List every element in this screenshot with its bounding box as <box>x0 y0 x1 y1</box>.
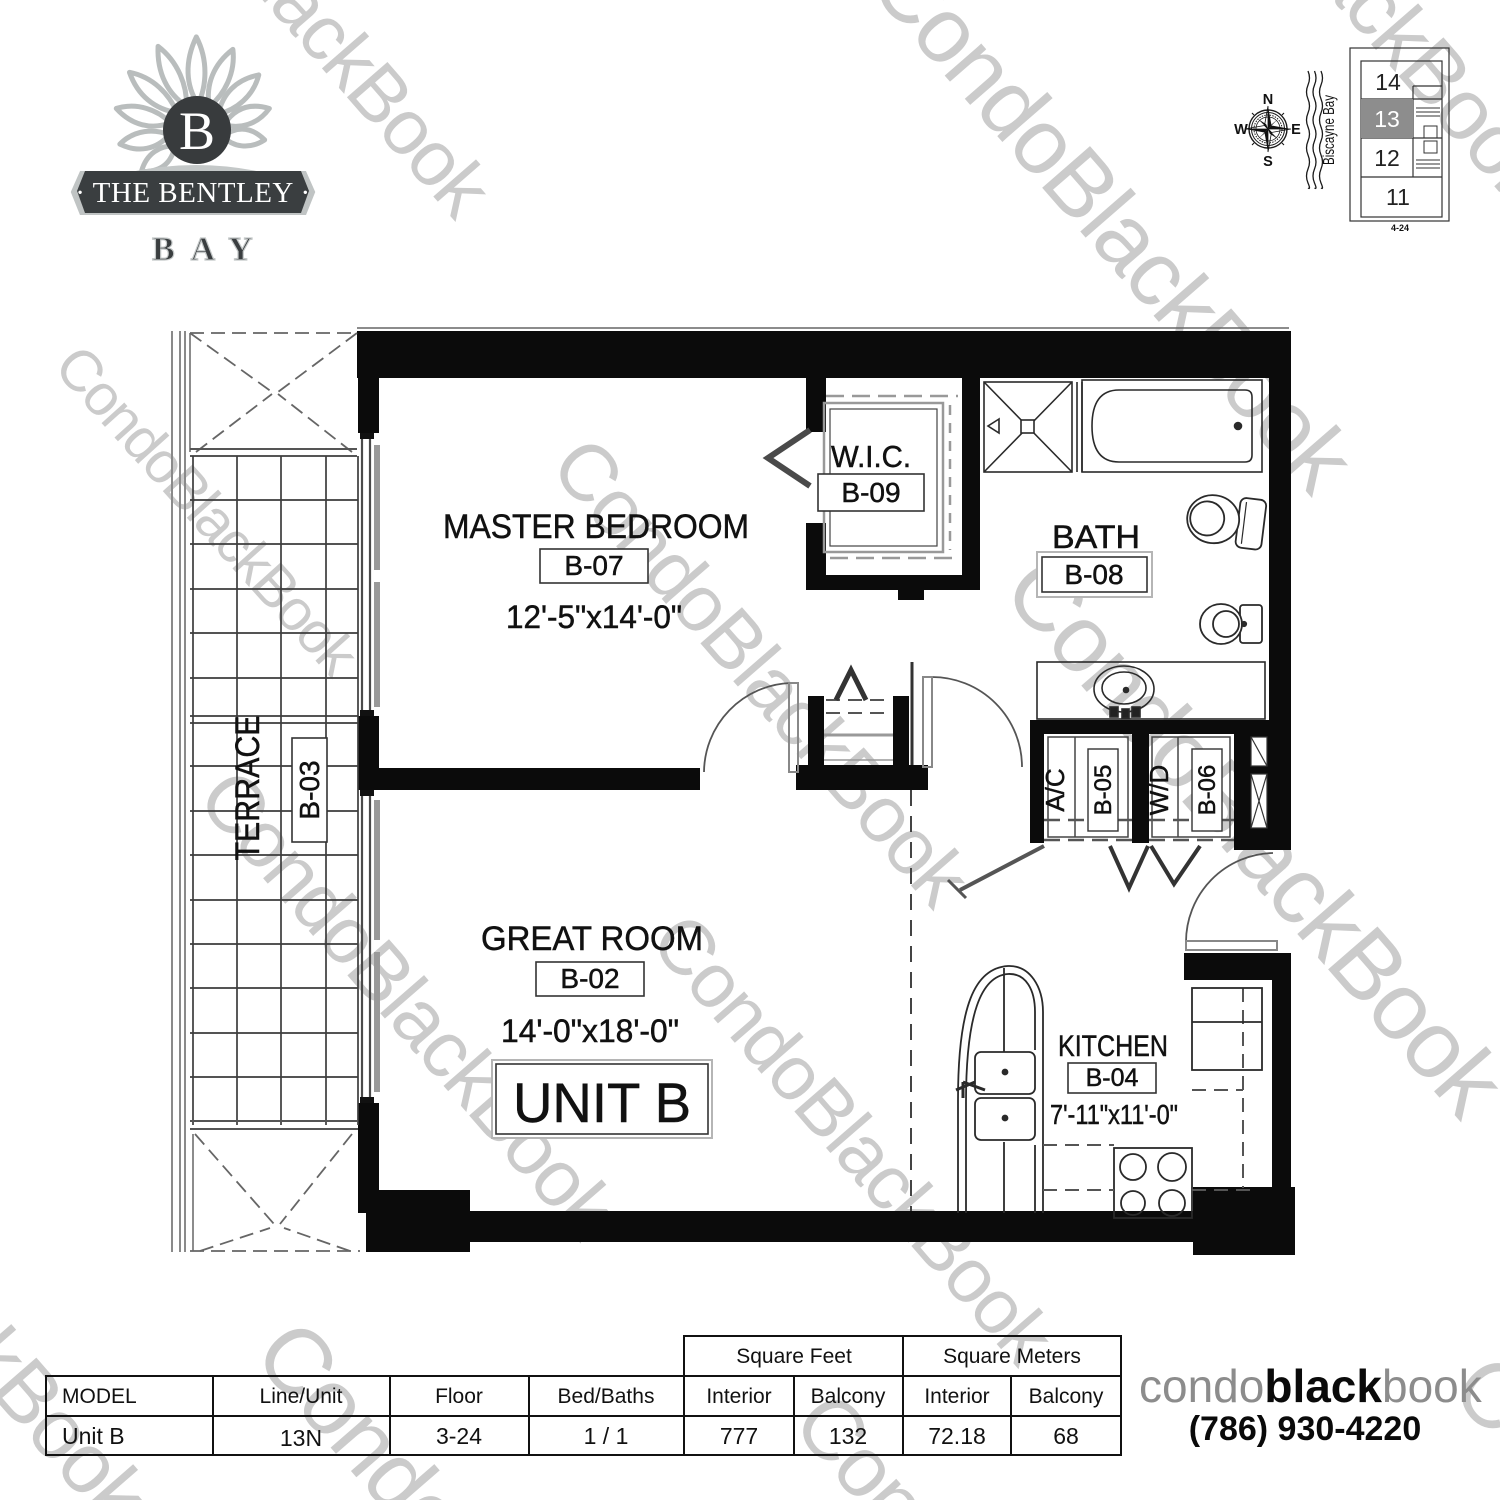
svg-text:B-02: B-02 <box>560 963 619 994</box>
svg-text:MASTER BEDROOM: MASTER BEDROOM <box>443 508 749 546</box>
svg-text:TERRACE: TERRACE <box>229 716 267 861</box>
svg-text:condoblackbook: condoblackbook <box>1139 1360 1483 1412</box>
svg-text:B-03: B-03 <box>294 760 325 819</box>
svg-text:13: 13 <box>1374 106 1400 132</box>
svg-text:Biscayne Bay: Biscayne Bay <box>1321 95 1338 165</box>
svg-text:777: 777 <box>720 1423 758 1449</box>
svg-text:Interior: Interior <box>924 1385 989 1408</box>
svg-text:W.I.C.: W.I.C. <box>831 439 911 474</box>
svg-text:14'-0"x18'-0": 14'-0"x18'-0" <box>501 1013 679 1049</box>
svg-text:N: N <box>1263 92 1273 108</box>
svg-text:B-05: B-05 <box>1090 765 1117 816</box>
svg-text:A/C: A/C <box>1040 768 1070 811</box>
svg-text:72.18: 72.18 <box>928 1423 986 1449</box>
svg-text:Interior: Interior <box>706 1385 771 1408</box>
svg-text:11: 11 <box>1386 184 1410 210</box>
svg-text:W/D: W/D <box>1144 765 1174 816</box>
svg-text:Line/Unit: Line/Unit <box>260 1385 343 1408</box>
svg-text:Floor: Floor <box>435 1385 483 1408</box>
svg-text:(786) 930-4220: (786) 930-4220 <box>1189 1410 1422 1448</box>
svg-text:1 / 1: 1 / 1 <box>584 1423 629 1449</box>
svg-text:MODEL: MODEL <box>62 1385 137 1408</box>
svg-text:B-04: B-04 <box>1086 1064 1139 1092</box>
svg-text:B-09: B-09 <box>841 477 900 508</box>
svg-text:Unit B: Unit B <box>62 1423 125 1449</box>
svg-text:B-07: B-07 <box>564 550 623 581</box>
svg-text:13N: 13N <box>280 1425 322 1451</box>
svg-text:· THE BENTLEY ·: · THE BENTLEY · <box>75 177 310 209</box>
svg-text:BAY: BAY <box>152 231 269 268</box>
svg-text:S: S <box>1263 154 1273 170</box>
svg-text:14: 14 <box>1375 69 1401 95</box>
svg-text:E: E <box>1291 122 1301 138</box>
svg-text:4-24: 4-24 <box>1391 223 1409 233</box>
svg-text:Bed/Baths: Bed/Baths <box>558 1385 655 1408</box>
svg-text:Balcony: Balcony <box>1029 1385 1104 1408</box>
svg-text:W: W <box>1234 122 1248 138</box>
svg-text:7'-11"x11'-0": 7'-11"x11'-0" <box>1050 1099 1178 1130</box>
svg-text:BATH: BATH <box>1052 519 1140 555</box>
svg-text:B: B <box>179 101 215 161</box>
svg-text:12: 12 <box>1374 145 1400 171</box>
svg-text:132: 132 <box>829 1423 867 1449</box>
svg-text:GREAT ROOM: GREAT ROOM <box>481 920 703 958</box>
svg-text:KITCHEN: KITCHEN <box>1058 1030 1168 1063</box>
svg-text:3-24: 3-24 <box>436 1423 482 1449</box>
svg-text:UNIT B: UNIT B <box>513 1071 691 1134</box>
svg-text:12'-5"x14'-0": 12'-5"x14'-0" <box>506 599 682 635</box>
svg-text:B-08: B-08 <box>1064 559 1123 590</box>
svg-text:68: 68 <box>1053 1423 1079 1449</box>
svg-text:B-06: B-06 <box>1194 765 1221 816</box>
svg-text:Square Feet: Square Feet <box>736 1345 852 1368</box>
svg-text:Square Meters: Square Meters <box>943 1345 1081 1368</box>
svg-text:Balcony: Balcony <box>811 1385 886 1408</box>
